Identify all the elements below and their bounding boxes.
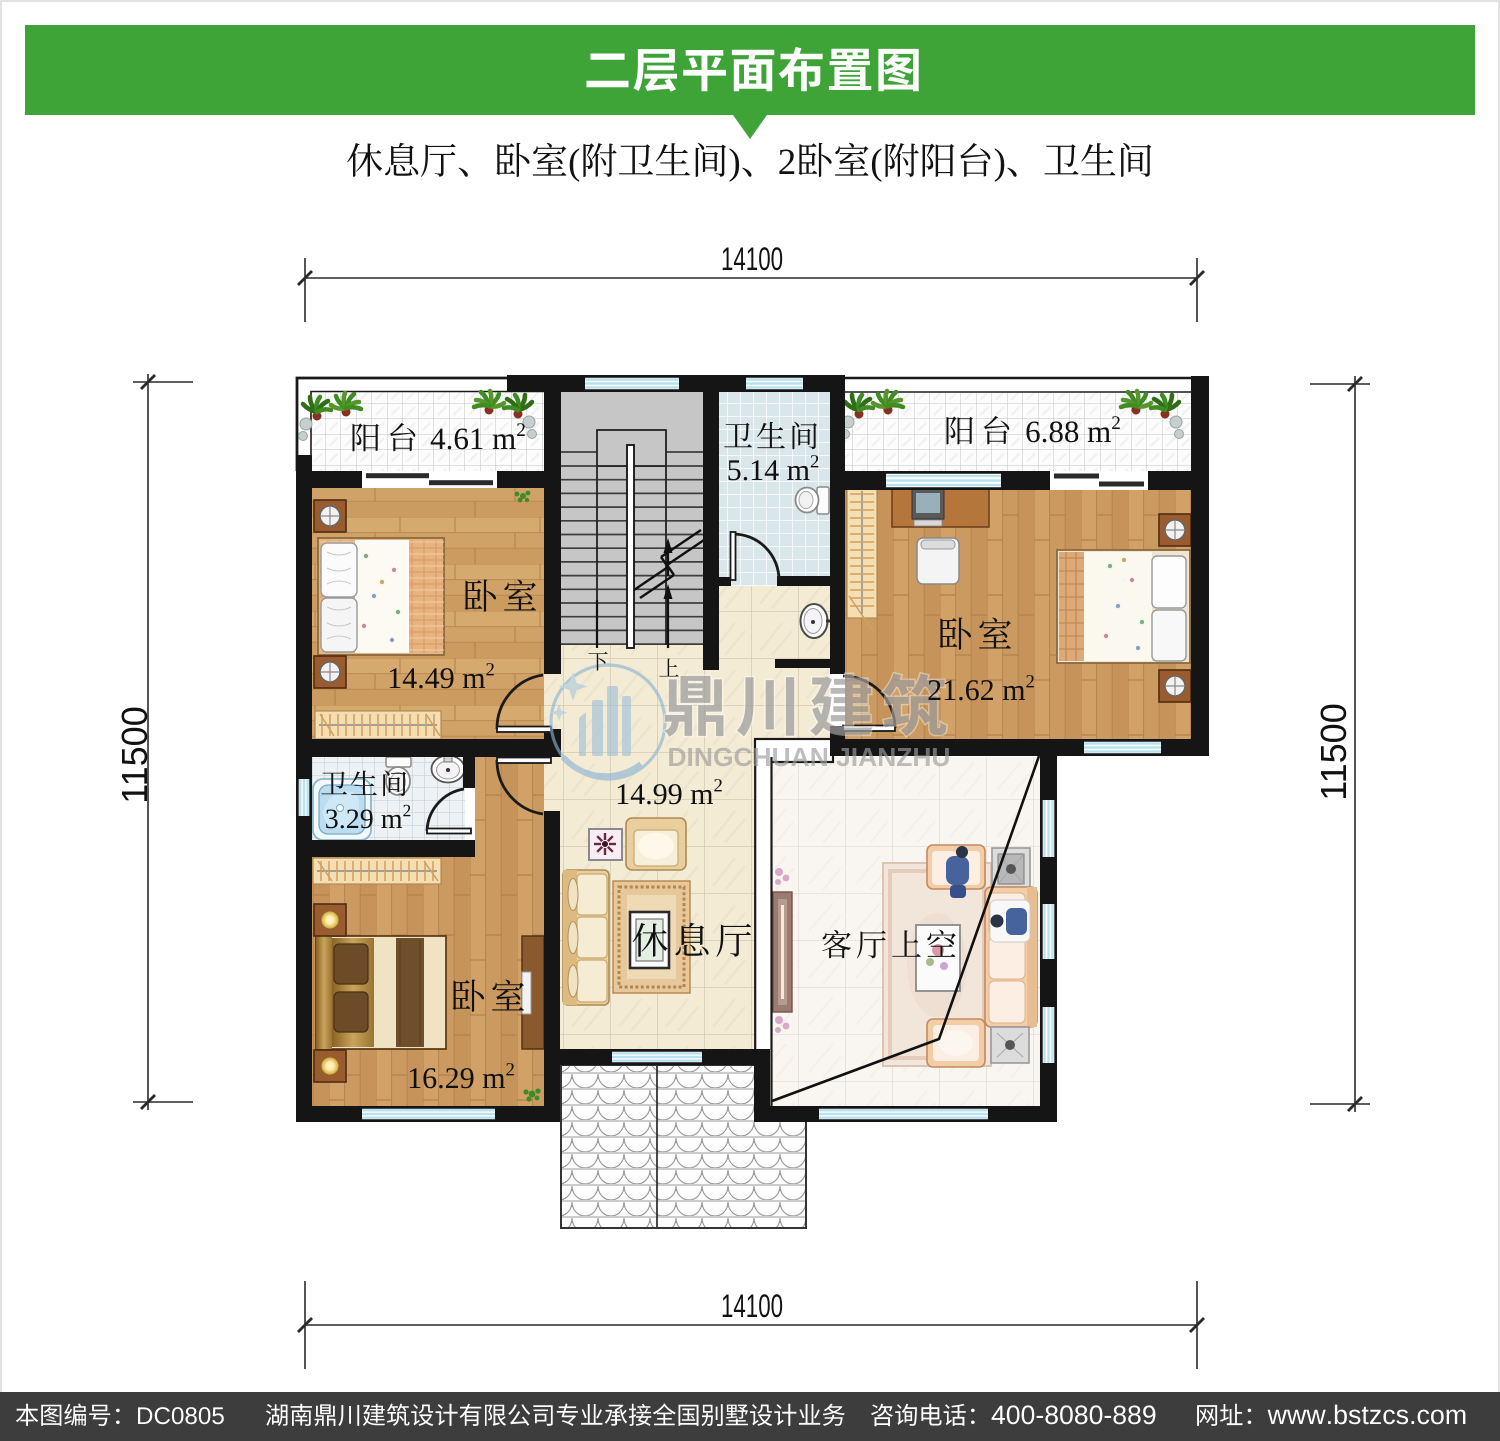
svg-text:11500: 11500	[1313, 703, 1354, 800]
svg-text:DINGCHUAN JIANZHU: DINGCHUAN JIANZHU	[668, 742, 951, 772]
svg-text:14100: 14100	[721, 1288, 783, 1324]
svg-text:11500: 11500	[114, 706, 155, 803]
svg-text:14100: 14100	[721, 241, 783, 277]
